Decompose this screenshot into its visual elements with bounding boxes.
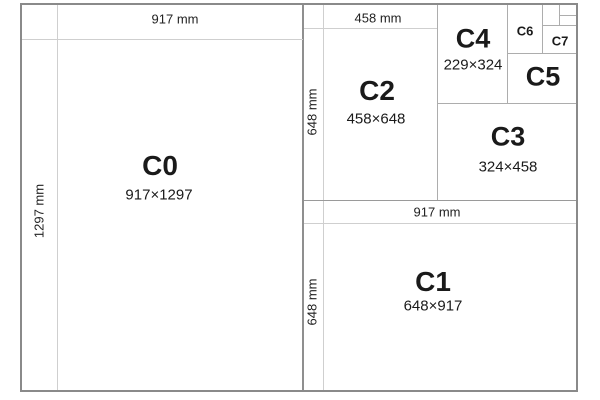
sheet-c3-size: 324×458	[479, 160, 538, 175]
c2-width-dimension-label: 458 mm	[355, 12, 402, 25]
sheet-c1-size: 648×917	[404, 299, 463, 314]
c2-width-strip-line	[304, 28, 437, 29]
sheet-c7-name: C7	[552, 35, 569, 48]
sheet-c1-name: C1	[415, 268, 451, 296]
c2-height-dimension-label: 648 mm	[306, 89, 319, 136]
sheet-c6-name: C6	[517, 25, 534, 38]
c1-width-strip-line	[304, 223, 576, 224]
c6-c7-boundary-line	[542, 5, 543, 53]
c1-top-edge-line	[304, 200, 576, 201]
sheet-c0-name: C0	[142, 152, 178, 180]
sheet-c2-size: 458×648	[347, 112, 406, 127]
sheet-c2-name: C2	[359, 77, 395, 105]
c2-c1-height-strip-line	[323, 5, 324, 390]
c-series-paper-sizes-diagram: 917 mm 1297 mm C0 917×1297 458 mm 648 mm…	[20, 3, 578, 392]
c0-width-strip-line	[22, 39, 303, 40]
sheet-c3-name: C3	[491, 124, 526, 151]
sheet-c4-name: C4	[456, 26, 491, 53]
diagram-area: 917 mm 1297 mm C0 917×1297 458 mm 648 mm…	[22, 5, 576, 390]
sheet-c5-name: C5	[526, 64, 561, 91]
c6-c5-boundary-line	[507, 53, 576, 54]
c1-width-dimension-label: 917 mm	[414, 206, 461, 219]
c1-height-dimension-label: 648 mm	[306, 279, 319, 326]
c0-right-edge-divider-line	[302, 5, 304, 390]
c7-top-boundary-line	[542, 25, 576, 26]
c0-height-strip-line	[57, 5, 58, 390]
c0-width-dimension-label: 917 mm	[152, 13, 199, 26]
c4-c6-boundary-line	[507, 5, 508, 103]
sheet-c0-size: 917×1297	[125, 188, 192, 203]
c9-boundary-line	[559, 15, 576, 16]
sheet-c4-size: 229×324	[444, 58, 503, 73]
c0-height-dimension-label: 1297 mm	[33, 184, 46, 238]
c4-c3-boundary-line	[437, 103, 576, 104]
